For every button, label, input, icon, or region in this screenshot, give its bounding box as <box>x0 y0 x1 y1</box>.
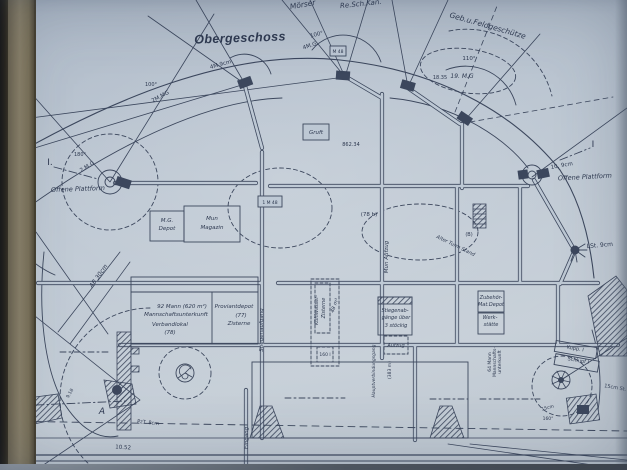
plan-label: (78 b) <box>361 212 378 218</box>
plan-label: Offene Plattform <box>51 184 105 194</box>
plan-label: unterkunft <box>497 350 503 374</box>
plan-label: stätte <box>484 322 499 328</box>
plan-label: M.G. <box>161 218 174 224</box>
photographed-plan-board: MörserRe.Sch.Kan.Geb.u.Feldgeschütze110°… <box>0 0 627 470</box>
plan-label: 18.35 <box>433 75 447 81</box>
plan-label: Mun <box>206 216 218 222</box>
plan-label: PzT. 8cm <box>137 419 160 427</box>
plan-label: M 48 <box>332 49 343 55</box>
plan-label: 100° <box>310 30 325 39</box>
plan-label: 4M.G. <box>302 41 319 52</box>
plan-label: Geb.u.Feldgeschütze <box>449 10 528 41</box>
plan-label: (78) <box>164 330 175 336</box>
board-frame-inner <box>8 0 36 470</box>
plan-label: Zubehör- <box>479 295 503 301</box>
plan-label: 110° <box>462 56 475 62</box>
plan-label: I <box>592 140 595 150</box>
plan-label: 160 l <box>319 352 330 358</box>
plan-label: 180° <box>74 152 87 158</box>
plan-label: I. <box>47 158 53 168</box>
plan-label: Werk- <box>483 315 498 321</box>
plan-label: 160° <box>543 416 554 422</box>
plan-label: 1 M 48 <box>262 200 277 206</box>
plan-label: Re.Sch.Kan. <box>340 0 382 10</box>
plan-label: Verbandlokal <box>152 322 188 328</box>
plan-label: 100° <box>145 82 158 88</box>
plan-label: Mat.Depot <box>478 302 505 308</box>
photo-right-shadow <box>615 0 627 470</box>
fortress-plan-drawing: MörserRe.Sch.Kan.Geb.u.Feldgeschütze110°… <box>0 0 627 470</box>
plan-label: gänge über <box>382 315 412 321</box>
plan-label: Magazin <box>201 225 224 231</box>
plan-label: 19. M.G <box>450 73 474 80</box>
plan-label: Eingang <box>244 426 250 449</box>
plan-label: 15cm <box>541 404 555 413</box>
plan-label: (77) <box>235 313 246 319</box>
plan-label: 2M.MG <box>151 90 171 104</box>
plan-label: LSt. 9cm <box>586 241 613 250</box>
board-frame-outer <box>0 0 8 470</box>
plan-label: 862.34 <box>342 142 360 148</box>
plan-label: AB 30cm <box>88 263 110 290</box>
plan-label: A <box>98 407 105 417</box>
plan-label: Offene Plattform <box>558 172 612 183</box>
plan-label: 92 Mann (620 m²) <box>157 303 207 310</box>
plan-label: Stiegenaufgang <box>259 308 265 352</box>
plan-label: Kühlwasser- <box>314 295 320 325</box>
plan-label: Zisterne <box>227 321 251 327</box>
masonry-hatching <box>28 204 627 438</box>
plan-label: 9.18 <box>65 388 75 400</box>
plan-label: Stiegenab- <box>381 308 408 314</box>
plan-label: (B) <box>465 232 472 238</box>
plan-label: Zisterne <box>321 298 327 320</box>
plan-label: Proviantdepot <box>215 304 254 310</box>
plan-linework <box>0 0 627 470</box>
plan-label: Schlupf I <box>567 356 589 366</box>
plan-label: 2.M.G <box>79 160 96 174</box>
plan-label: 10.52 <box>115 444 131 451</box>
plan-label: Mannschaftsunterkunft <box>144 312 209 318</box>
plan-label: Mörser <box>289 0 317 11</box>
plan-label: Mun Aufzug <box>384 240 390 273</box>
plan-label: Aufzug <box>386 343 404 349</box>
plan-label: 3 stöckig <box>385 323 408 329</box>
plan-label: Hauptverbindungsgang <box>371 344 377 397</box>
plan-label: Gruft <box>309 130 324 136</box>
photo-bottom-shadow <box>0 464 627 470</box>
plan-label: Depot <box>159 226 176 232</box>
plan-label: (383 m) <box>387 361 393 379</box>
